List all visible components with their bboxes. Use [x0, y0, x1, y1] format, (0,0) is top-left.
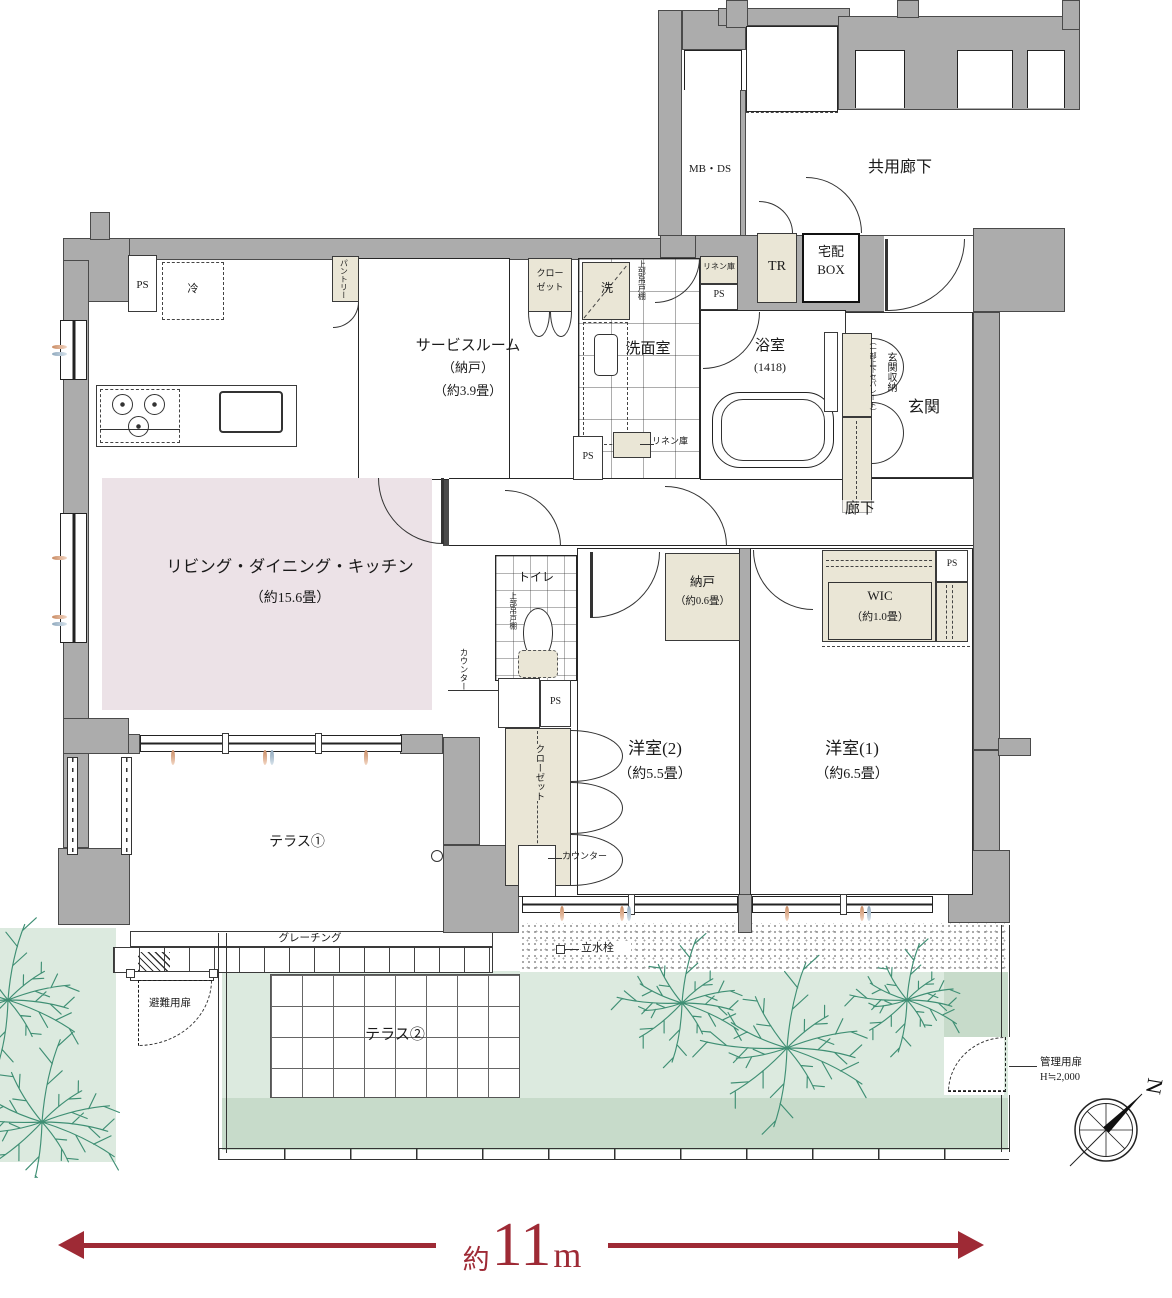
floor-plan: テラス② グレーチング 避難用扉 管理用扉 H≒2,000 立水栓 MB・DS …	[0, 0, 1172, 1298]
wic-side-dash1	[946, 585, 947, 639]
window-mark	[52, 556, 67, 560]
closet-service-label1: クロー	[528, 268, 572, 280]
evac-door-label: 避難用扉	[120, 997, 220, 1011]
window-mark	[52, 622, 67, 626]
evac-door-end-left	[126, 969, 135, 978]
ps-band-label: PS	[699, 288, 739, 301]
grating-tiles	[113, 947, 493, 973]
water-tap-label: 立水栓	[581, 941, 631, 955]
window-mark	[627, 906, 631, 921]
compass: N	[1056, 1076, 1168, 1188]
bedroom2-counter-leader	[548, 858, 562, 859]
window-mark	[785, 906, 789, 921]
service-room-name: サービスルーム	[378, 337, 558, 357]
ps-toilet-label: PS	[538, 695, 573, 708]
wall-top-tab3	[1062, 0, 1080, 30]
nando-name: 納戸	[665, 574, 740, 590]
bathroom-size: (1418)	[720, 360, 820, 376]
entry-storage-label: 玄関収納	[884, 352, 897, 392]
dimension-prefix: 約	[463, 1245, 490, 1276]
service-door-line	[948, 1090, 1006, 1091]
bedroom1-name: 洋室(1)	[787, 738, 917, 760]
ldk-name: リビング・ダイニング・キッチン	[120, 556, 460, 577]
compass-north-label: N	[1141, 1076, 1168, 1096]
wall-ldk-window-pier-right	[400, 734, 443, 754]
linen-upper-label: リネン庫	[699, 262, 739, 272]
dimension-unit: m	[553, 1236, 581, 1276]
wall-ldk-corner-left	[63, 718, 129, 754]
bedroom2-counter	[518, 845, 556, 897]
window-mark	[263, 750, 267, 765]
wic-dash2	[826, 566, 932, 567]
fence-left	[218, 933, 227, 1153]
terrace1-board-left	[67, 757, 78, 855]
wall-right-lower	[973, 750, 1000, 852]
wic-bottom-dash	[822, 646, 970, 647]
stove-front-line	[100, 429, 180, 430]
dimension-arrowhead-right	[958, 1231, 984, 1259]
terrace1-board-right	[121, 757, 132, 855]
wall-mbds-left-strip	[658, 10, 682, 236]
service-room-area: （約3.9畳）	[378, 383, 558, 400]
bath-counter	[824, 332, 838, 412]
garden-outer-band	[222, 1098, 1008, 1150]
meter-room-open-edge	[746, 112, 838, 113]
trunk-room-label: TR	[755, 258, 799, 276]
washroom-label: 洗面室	[598, 340, 698, 360]
hallway-label: 廊下	[828, 500, 892, 520]
bedroom1-window-mullion	[840, 894, 847, 915]
window-mark	[860, 906, 864, 921]
delivery-box-label2: BOX	[802, 262, 860, 279]
bedroom1-area: （約6.5畳）	[787, 766, 917, 784]
ps-kitchen-label: PS	[126, 278, 159, 292]
window-mark	[364, 750, 368, 765]
bathtub-inner	[721, 399, 825, 461]
entrance-door-leaf	[885, 239, 888, 311]
linen-lower-label: リネン庫	[652, 436, 698, 448]
service-door-label: 管理用扉	[1040, 1056, 1130, 1070]
wall-right-upper	[973, 312, 1000, 750]
toilet-label: トイレ	[506, 570, 566, 586]
wall-window-pier-mid	[738, 893, 752, 933]
ldk-window-mullion1	[222, 733, 229, 754]
closet-service-door2	[550, 312, 572, 337]
pantry-label: パントリー	[338, 259, 348, 299]
dimension-line-right	[608, 1243, 960, 1248]
common-corridor-label: 共用廊下	[820, 158, 980, 179]
dimension-text: 約 11 m	[428, 1198, 616, 1276]
toilet-counter	[498, 678, 540, 728]
toilet-counter-leader	[448, 690, 498, 691]
evac-door-end-right	[209, 969, 218, 978]
fridge-label: 冷	[178, 282, 208, 296]
toilet-upper-cabinet-label: 上部吊戸棚	[508, 592, 518, 630]
window-mark	[52, 352, 67, 356]
wall-right-protrusion	[998, 738, 1031, 756]
mbds-label: MB・DS	[678, 162, 742, 176]
kitchen-sink	[219, 391, 283, 433]
wall-top-tab1	[726, 0, 748, 28]
niche-d	[957, 50, 1013, 108]
entry-storage-note: （一部上下セパレート）	[868, 338, 877, 415]
pantry-door-swing	[333, 302, 359, 328]
window-mark	[560, 906, 564, 921]
entrance-label: 玄関	[892, 398, 956, 419]
stove-burner-3	[128, 416, 149, 437]
entry-storage-lower	[842, 417, 872, 513]
garden-left-strip	[0, 928, 116, 1162]
water-tap-symbol	[556, 945, 565, 954]
service-room-alt: （納戸）	[378, 360, 558, 377]
service-door-leader	[1009, 1066, 1037, 1067]
garden-right-column	[944, 971, 1008, 1037]
ldk-window-mullion2	[315, 733, 322, 754]
washer-label: 洗	[592, 281, 622, 297]
terrace2-label: テラス②	[300, 1026, 490, 1046]
window-mark	[270, 750, 274, 765]
wall-terrace-right-col	[443, 737, 480, 845]
fence-bottom	[218, 1148, 1009, 1160]
stove-burner-2	[144, 394, 165, 415]
wall-top-tab2	[897, 0, 919, 18]
evac-door-swing	[138, 980, 212, 1046]
trunk-door-swing	[759, 201, 793, 233]
grating-label: グレーチング	[210, 932, 410, 946]
window-mark	[52, 345, 67, 349]
meter-room	[746, 26, 838, 112]
ldk-door-leaf	[441, 478, 444, 544]
fence-right-upper	[1001, 925, 1010, 1037]
window-mark	[52, 615, 67, 619]
window-mark	[867, 906, 871, 921]
ps-washroom-label: PS	[571, 450, 605, 463]
dimension-line-left	[78, 1243, 436, 1248]
entry-storage-dash	[856, 421, 857, 509]
terrace1-label: テラス①	[240, 834, 354, 852]
toilet-tank	[518, 650, 558, 678]
ldk-area: （約15.6畳）	[120, 590, 460, 608]
dimension-arrowhead-left	[58, 1231, 84, 1259]
delivery-box-label1: 宅配	[802, 244, 860, 261]
stove-burner-1	[112, 394, 133, 415]
water-tap-leader	[565, 949, 579, 950]
wall-left-bottom-block	[58, 848, 130, 925]
window-mark	[171, 750, 175, 765]
niche-c	[855, 50, 905, 108]
wall-topleft-notch	[90, 212, 110, 240]
nando-area: （約0.6畳）	[663, 595, 742, 609]
niche-e	[1027, 50, 1065, 108]
wic-name: WIC	[828, 588, 932, 605]
wic-dash1	[826, 560, 932, 561]
dimension-value: 11	[492, 1214, 552, 1276]
wic-side-dash2	[952, 585, 953, 639]
delivery-door-swing	[806, 177, 862, 233]
terrace1-drain	[431, 850, 443, 862]
kitchen-side-window	[60, 320, 87, 380]
toilet-counter-label: カウンター	[458, 648, 469, 691]
closet-service-door1	[528, 312, 550, 337]
niche-a	[684, 50, 742, 90]
closet-bedroom2-label: クローゼット	[532, 744, 544, 801]
linen-cabinet-lower	[613, 432, 651, 458]
upper-cabinet-wash-label: 上部吊戸棚	[636, 260, 646, 300]
wic-area: （約1.0畳）	[826, 610, 934, 624]
fence-right-lower	[1001, 1095, 1010, 1152]
bedroom2-counter-label: カウンター	[562, 851, 618, 863]
wall-topright-corner	[973, 228, 1065, 312]
ps-wic-label: PS	[934, 558, 970, 570]
window-mark	[620, 906, 624, 921]
closet-service-label2: ゼット	[528, 282, 572, 294]
